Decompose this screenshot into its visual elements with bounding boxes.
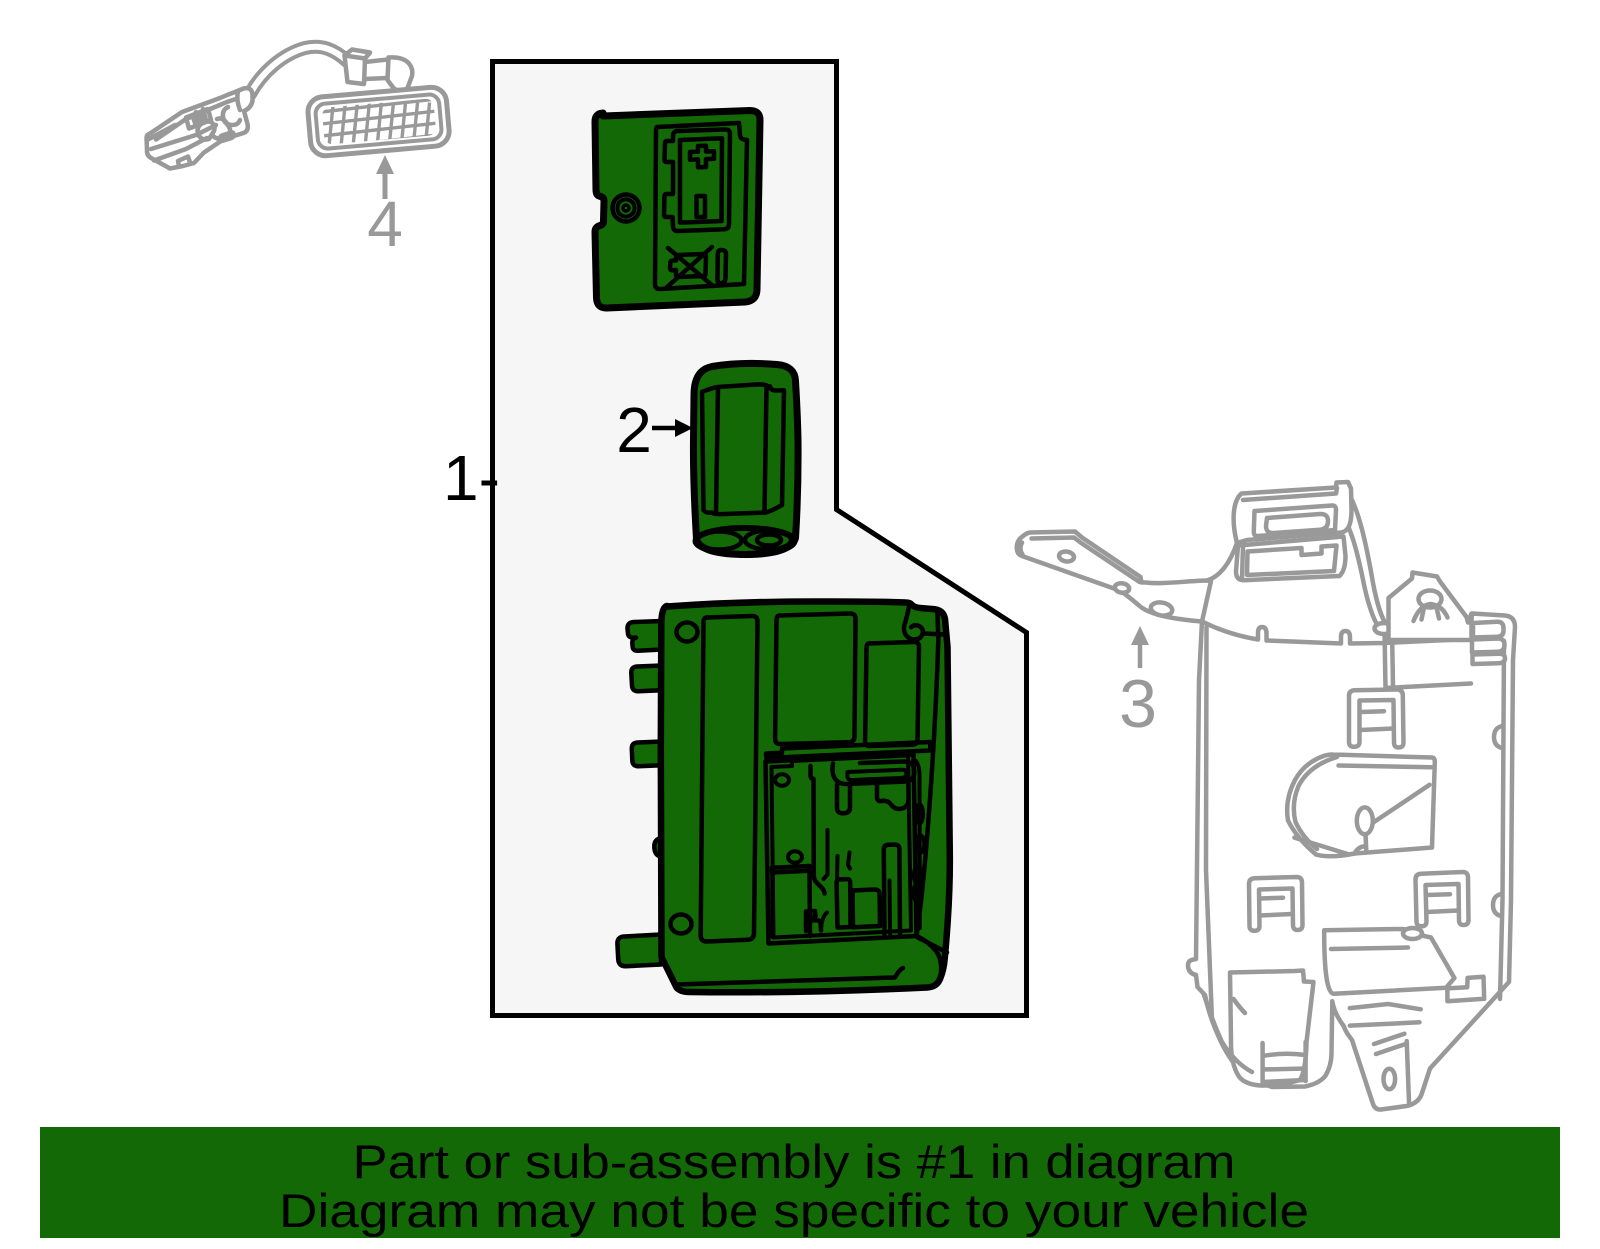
svg-text:4: 4 (367, 188, 403, 260)
svg-text:1-: 1- (443, 442, 500, 514)
svg-text:Diagram may not be specific to: Diagram may not be specific to your vehi… (279, 1184, 1309, 1237)
svg-text:Part or sub-assembly is #1 in: Part or sub-assembly is #1 in diagram (353, 1135, 1236, 1188)
svg-text:2: 2 (616, 394, 652, 466)
svg-text:3: 3 (1119, 666, 1157, 742)
